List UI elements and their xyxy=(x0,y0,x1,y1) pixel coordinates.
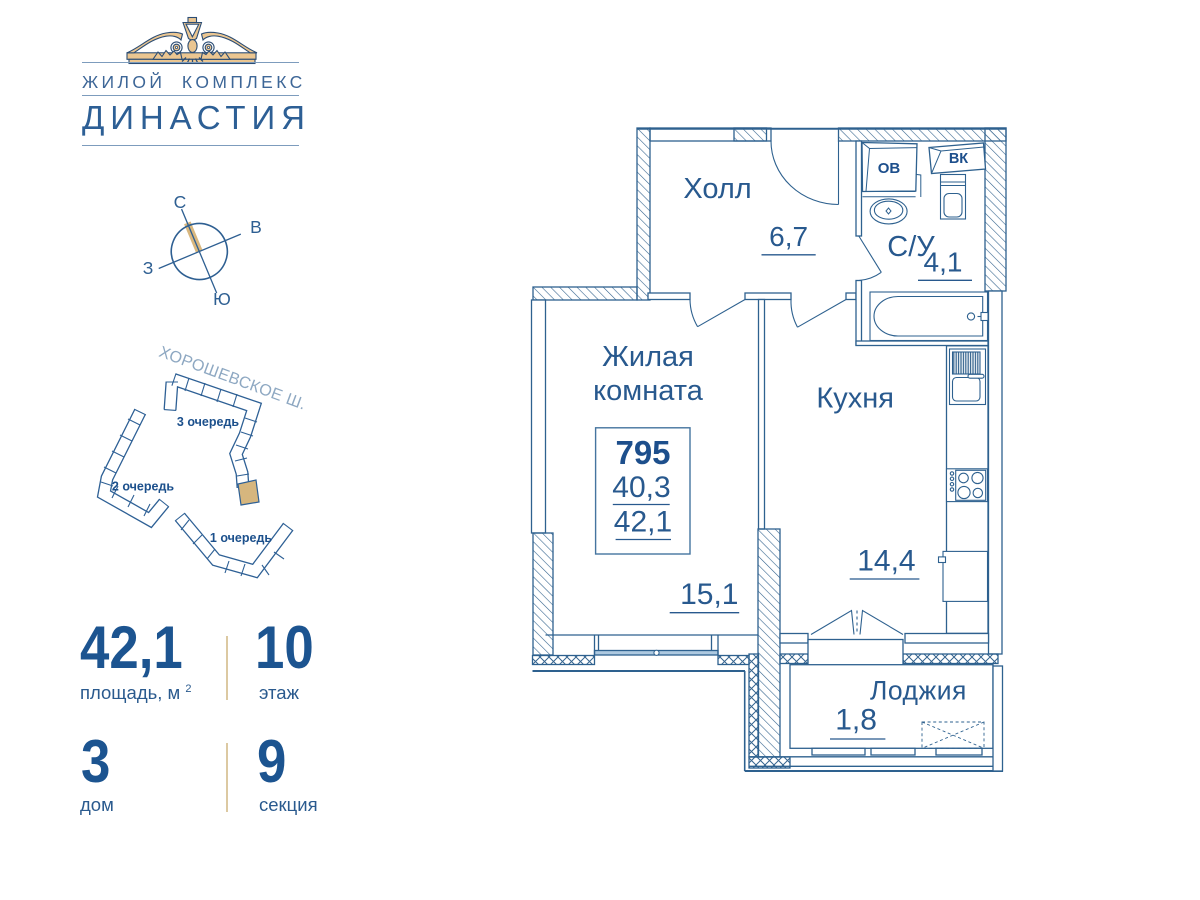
svg-text:1,8: 1,8 xyxy=(835,704,877,737)
svg-text:14,4: 14,4 xyxy=(857,545,915,578)
svg-text:ВК: ВК xyxy=(949,151,968,167)
svg-text:795: 795 xyxy=(615,434,670,471)
svg-text:Жилая: Жилая xyxy=(602,341,694,373)
svg-text:ОВ: ОВ xyxy=(878,160,901,177)
svg-text:6,7: 6,7 xyxy=(769,221,808,252)
svg-text:40,3: 40,3 xyxy=(612,471,670,504)
svg-text:комната: комната xyxy=(593,375,704,407)
svg-text:Холл: Холл xyxy=(683,173,751,205)
svg-text:4,1: 4,1 xyxy=(924,247,963,278)
svg-text:42,1: 42,1 xyxy=(614,506,672,539)
svg-text:Кухня: Кухня xyxy=(816,383,894,415)
svg-text:Лоджия: Лоджия xyxy=(870,676,967,706)
svg-text:15,1: 15,1 xyxy=(680,578,738,611)
